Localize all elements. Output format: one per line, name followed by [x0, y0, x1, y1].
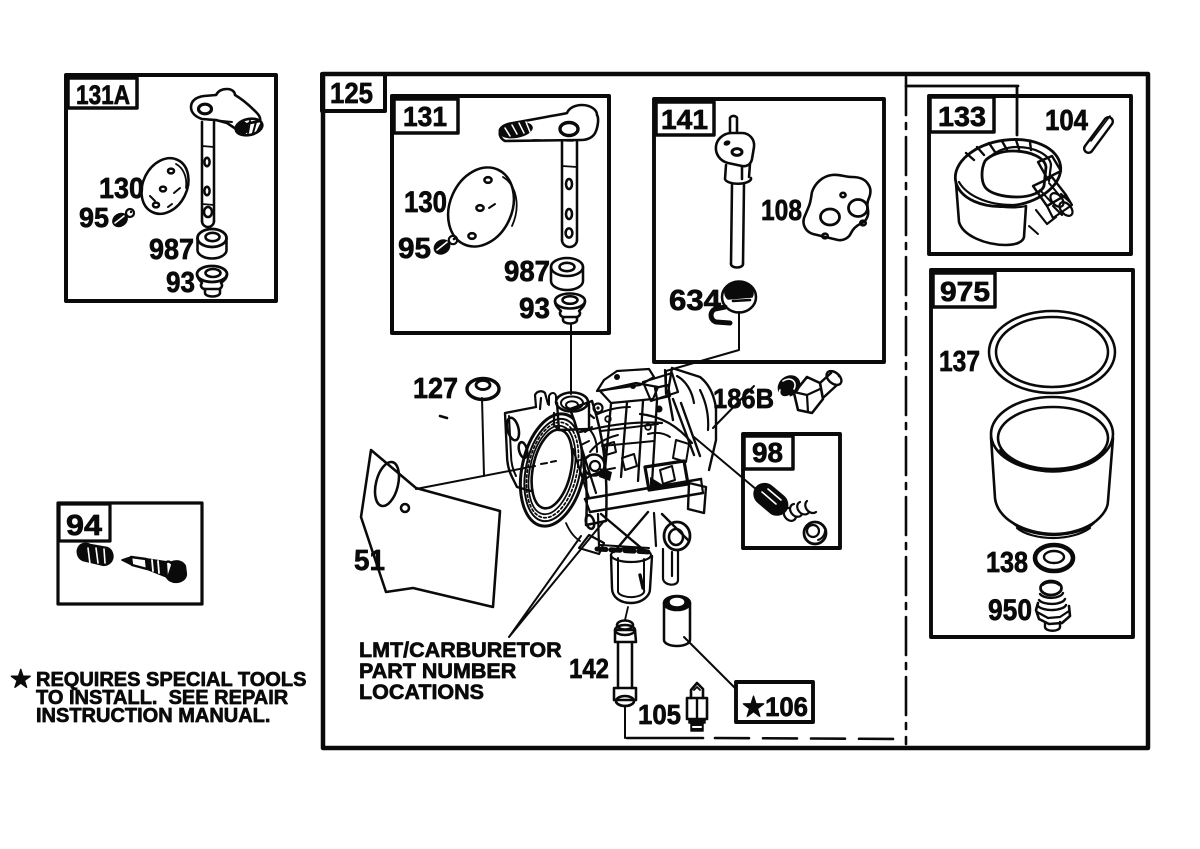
svg-text:131A: 131A: [76, 80, 130, 110]
svg-text:93: 93: [166, 267, 195, 299]
svg-text:130: 130: [99, 173, 144, 205]
svg-text:95: 95: [398, 233, 431, 265]
svg-text:138: 138: [986, 547, 1028, 579]
svg-text:94: 94: [66, 510, 102, 542]
svg-text:133: 133: [938, 101, 986, 132]
svg-text:105: 105: [638, 699, 681, 730]
svg-text:★: ★: [10, 666, 32, 693]
svg-text:137: 137: [939, 346, 980, 378]
svg-text:INSTRUCTION MANUAL.: INSTRUCTION MANUAL.: [36, 705, 270, 727]
svg-text:142: 142: [569, 653, 609, 684]
svg-text:104: 104: [1045, 105, 1088, 137]
svg-text:186B: 186B: [713, 383, 774, 414]
svg-text:95: 95: [79, 202, 109, 233]
svg-text:950: 950: [988, 594, 1032, 627]
svg-text:987: 987: [149, 234, 194, 266]
svg-text:127: 127: [413, 373, 458, 405]
svg-text:93: 93: [519, 293, 550, 325]
svg-text:125: 125: [330, 78, 373, 110]
svg-text:★106: ★106: [742, 692, 808, 722]
svg-text:131: 131: [403, 101, 447, 132]
svg-text:141: 141: [661, 104, 708, 135]
svg-text:987: 987: [504, 256, 550, 288]
svg-text:LOCATIONS: LOCATIONS: [359, 680, 484, 704]
svg-text:130: 130: [404, 186, 447, 219]
svg-text:975: 975: [940, 276, 990, 307]
svg-text:108: 108: [761, 195, 802, 227]
svg-text:98: 98: [752, 437, 783, 468]
